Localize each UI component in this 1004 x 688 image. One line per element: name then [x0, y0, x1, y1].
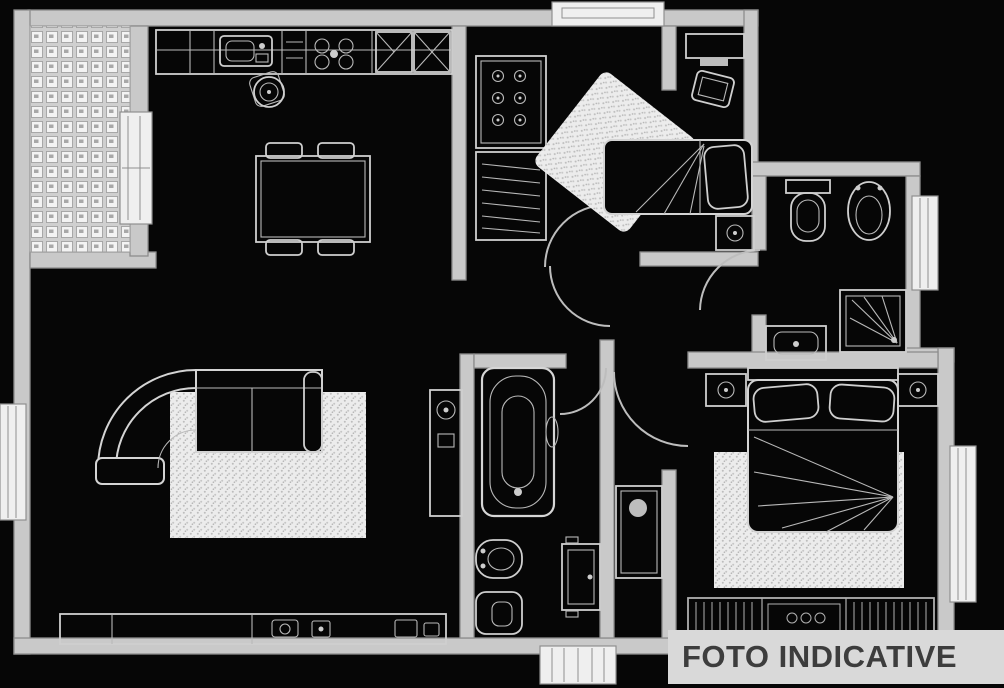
toilet — [476, 592, 522, 634]
door-arc-bedroom2 — [550, 266, 610, 326]
bathroom1 — [766, 180, 906, 360]
hall-closet — [476, 56, 546, 240]
french-window-terrace — [120, 112, 152, 224]
stove — [315, 39, 353, 69]
tv-icon — [272, 620, 298, 637]
nightstand — [706, 374, 746, 406]
floor-plan: FOTO INDICATIVE — [0, 0, 1004, 688]
terrace-floor — [30, 26, 130, 252]
floor-plan-drawing — [0, 0, 1004, 688]
watermark-band: FOTO INDICATIVE — [668, 630, 1004, 684]
nightstand — [716, 216, 754, 250]
bidet — [476, 540, 522, 578]
fridge-cabinet — [376, 32, 412, 72]
shoe-rack-icons — [493, 71, 526, 126]
door-arc-hall — [545, 205, 607, 267]
door-arc-master-bedroom — [614, 372, 688, 446]
door-arc-bathroom2 — [560, 368, 606, 414]
desk-chair — [691, 70, 735, 108]
single-bed — [604, 140, 752, 214]
window-left — [0, 404, 26, 520]
window-right-bedroom — [950, 446, 976, 602]
toilet — [786, 180, 830, 241]
double-bed — [748, 368, 898, 532]
kitchen-counter — [156, 30, 452, 74]
drain-board — [286, 42, 303, 58]
desk — [686, 34, 744, 66]
decoder-icon — [395, 620, 439, 637]
louver-shelf — [482, 164, 540, 233]
bathroom2 — [476, 368, 558, 634]
entrance-door — [552, 2, 664, 26]
window-bathroom — [912, 196, 938, 290]
door-arcs — [545, 205, 760, 446]
dining-table — [256, 143, 370, 255]
master-bedroom — [706, 368, 938, 588]
bathtub — [482, 368, 558, 516]
watermark-text: FOTO INDICATIVE — [668, 639, 957, 675]
kitchen-sink — [220, 36, 272, 66]
pantry-cabinet — [414, 32, 450, 72]
storage-cabinet — [616, 486, 662, 578]
shower — [840, 290, 906, 352]
dresser — [562, 537, 600, 617]
window-bottom — [540, 646, 616, 684]
kitchen-stool — [248, 70, 286, 108]
wall-shelf — [430, 390, 462, 516]
bidet — [848, 182, 890, 240]
speaker-icon — [312, 621, 330, 637]
nightstand — [898, 374, 938, 406]
